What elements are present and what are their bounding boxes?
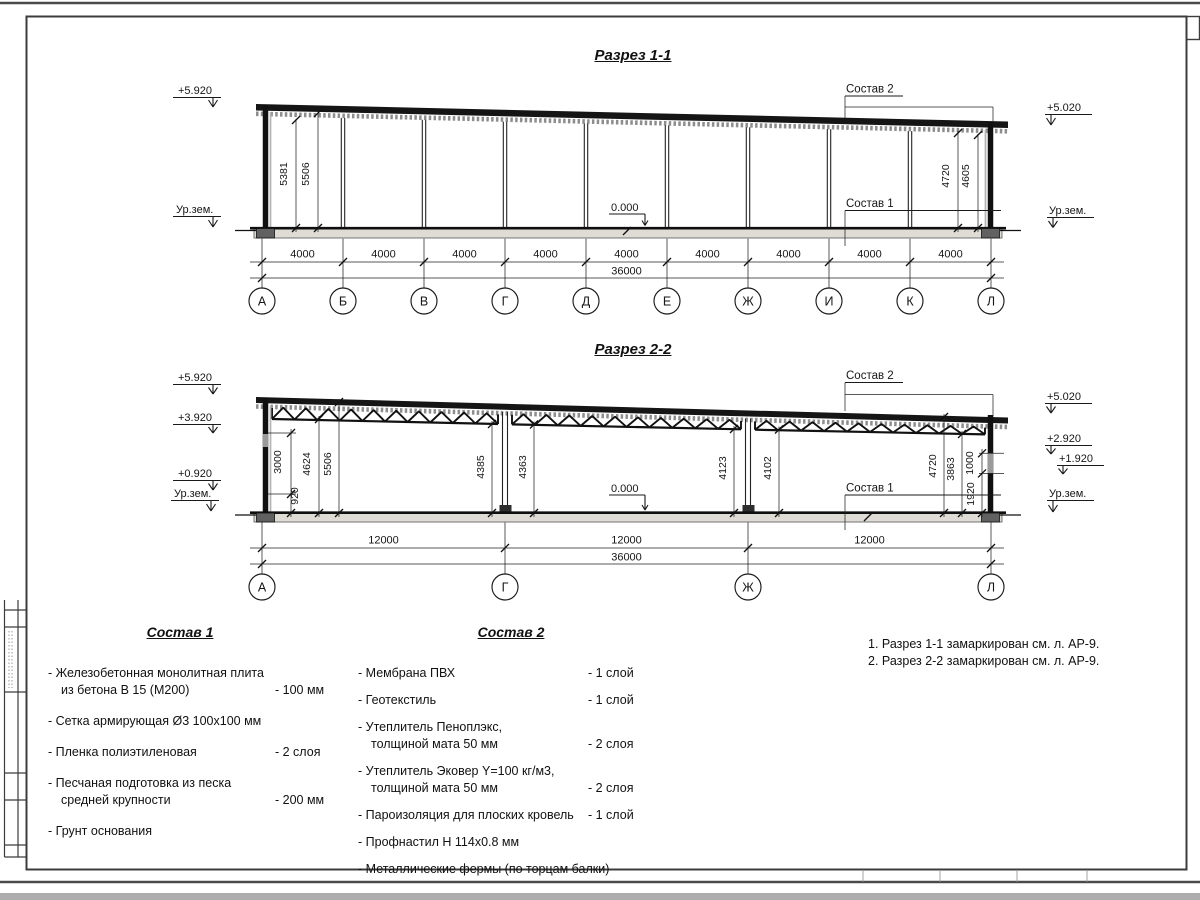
- dim-label: 5506: [300, 162, 312, 186]
- bay-dim: 4000: [533, 249, 557, 261]
- dim-label: 4123: [717, 456, 729, 480]
- dim-label: 920: [289, 487, 301, 505]
- list-item: - Песчаная подготовка из песка средней к…: [48, 775, 348, 809]
- list-item: - Утеплитель Эковер Y=100 кг/м3, толщино…: [358, 763, 668, 797]
- bay-dim: 12000: [611, 535, 642, 547]
- axis-letter: Е: [663, 295, 671, 309]
- list-item: - Грунт основания: [48, 823, 348, 840]
- bay-dim: 4000: [695, 249, 719, 261]
- elevation-label: +0.920: [178, 468, 212, 480]
- comp1-callout: Состав 1: [846, 198, 894, 210]
- axis-letter: Б: [339, 295, 347, 309]
- axis-letter: В: [420, 295, 428, 309]
- dim-label: 4102: [762, 456, 774, 480]
- composition-2-title: Состав 2: [358, 624, 664, 640]
- frame-corner-box: [1187, 17, 1200, 40]
- axis-letter: Г: [502, 581, 509, 595]
- section-2-2-title: Разрез 2-2: [558, 341, 708, 358]
- axis-bubbles-2-2: А Г Ж Л: [249, 574, 1004, 600]
- bay-dim: 4000: [452, 249, 476, 261]
- bay-dim: 4000: [614, 249, 638, 261]
- list-item: - Пароизоляция для плоских кровель - 1 с…: [358, 807, 668, 824]
- list-item: - Пленка полиэтиленовая - 2 слоя: [48, 744, 348, 761]
- bottom-dims-1-1: 4000 4000 4000 4000 4000 4000 4000 4000 …: [250, 239, 1004, 288]
- bay-dim: 4000: [857, 249, 881, 261]
- section-2-2: 3000 920 4624 5506 4385 4363 4123 4102 4…: [171, 370, 1104, 600]
- list-item: - Железобетонная монолитная плита из бет…: [48, 665, 348, 699]
- elevation-label: +1.920: [1059, 453, 1093, 465]
- axis-bubbles-1-1: А Б В Г Д Е Ж И К Л: [249, 288, 1004, 314]
- dim-label: 3863: [945, 457, 957, 481]
- zero-level-label: 0.000: [611, 202, 639, 214]
- axis-letter: Л: [987, 295, 995, 309]
- composition-callouts-2-2: Состав 2 Состав 1: [845, 370, 1001, 530]
- dim-label: 1920: [965, 482, 977, 506]
- floor-slab-1-1: [235, 227, 1021, 238]
- list-item: - Профнастил Н 114х0.8 мм: [358, 834, 668, 851]
- list-item: - Сетка армирующая Ø3 100х100 мм: [48, 713, 348, 730]
- zero-level-label: 0.000: [611, 483, 639, 495]
- dim-label: 1000: [964, 451, 976, 475]
- elevation-marks-2-2-left: +5.920 +3.920 +0.920 Ур.зем.: [171, 372, 221, 511]
- comp1-callout: Состав 1: [846, 483, 894, 495]
- item-qty: - 1 слой: [588, 807, 634, 824]
- dim-label: 5381: [278, 162, 290, 186]
- item-qty: - 2 слоя: [588, 780, 633, 797]
- item-qty: - 1 слой: [588, 665, 634, 682]
- sheet-bottom-band: [0, 893, 1200, 900]
- elevation-label: Ур.зем.: [1049, 488, 1086, 500]
- composition-1-title: Состав 1: [48, 624, 312, 640]
- bottom-dims-2-2: 12000 12000 12000 36000: [250, 523, 1004, 575]
- bay-dim: 12000: [854, 535, 885, 547]
- titleblock-ticks: [863, 870, 1087, 882]
- total-dim: 36000: [611, 552, 642, 564]
- elevation-label: +5.920: [178, 372, 212, 384]
- axis-letter: И: [825, 295, 834, 309]
- floor-slab-2-2: [235, 513, 1021, 522]
- dim-label: 4385: [475, 455, 487, 479]
- elevation-label: Ур.зем.: [174, 488, 211, 500]
- list-item: - Геотекстиль - 1 слой: [358, 692, 668, 709]
- left-stamp-column: [5, 600, 27, 857]
- bay-dim: 4000: [290, 249, 314, 261]
- item-qty: - 2 слоя: [588, 736, 633, 753]
- composition-callouts-1-1: Состав 2 Состав 1: [845, 84, 1001, 247]
- bay-dim: 4000: [938, 249, 962, 261]
- item-qty: - 2 слоя: [275, 744, 320, 761]
- axis-letter: Д: [582, 295, 591, 309]
- dim-label: 4720: [927, 454, 939, 478]
- comp2-callout: Состав 2: [846, 84, 894, 96]
- axis-letter: Г: [502, 295, 509, 309]
- axis-letter: К: [906, 295, 914, 309]
- dim-label: 3000: [272, 450, 284, 474]
- drawing-sheet: 5381 5506 4720 4605 +5.920 Ур.зем. +5.02…: [0, 0, 1200, 900]
- elevation-label: +5.020: [1047, 102, 1081, 114]
- elevation-label: +3.920: [178, 412, 212, 424]
- elevation-label: Ур.зем.: [1049, 205, 1086, 217]
- bay-dim: 12000: [368, 535, 399, 547]
- item-qty: - 1 слой: [588, 692, 634, 709]
- axis-letter: А: [258, 581, 267, 595]
- dim-label: 4605: [960, 164, 972, 188]
- axis-letter: Ж: [742, 295, 754, 309]
- bay-dim: 4000: [776, 249, 800, 261]
- note-line: 1. Разрез 1-1 замаркирован см. л. АР-9.: [868, 636, 1099, 653]
- list-item: - Металлические фермы (по торцам балки): [358, 861, 668, 878]
- axis-letter: Ж: [742, 581, 754, 595]
- elevation-label: +2.920: [1047, 433, 1081, 445]
- dim-label: 4720: [940, 164, 952, 188]
- note-line: 2. Разрез 2-2 замаркирован см. л. АР-9.: [868, 653, 1099, 670]
- section-1-1: 5381 5506 4720 4605 +5.920 Ур.зем. +5.02…: [173, 84, 1094, 315]
- list-item: - Мембрана ПВХ - 1 слой: [358, 665, 668, 682]
- dim-label: 4363: [517, 455, 529, 479]
- list-item: - Утеплитель Пеноплэкс, толщиной мата 50…: [358, 719, 668, 753]
- bay-dim: 4000: [371, 249, 395, 261]
- composition-1-list: Состав 1 - Железобетонная монолитная пли…: [48, 624, 348, 854]
- axis-letter: Л: [987, 581, 995, 595]
- comp2-callout: Состав 2: [846, 370, 894, 382]
- total-dim: 36000: [611, 266, 642, 278]
- elevation-label: Ур.зем.: [176, 204, 213, 216]
- dim-label: 4624: [301, 452, 313, 476]
- item-qty: - 100 мм: [275, 682, 324, 699]
- axis-letter: А: [258, 295, 267, 309]
- dim-label: 5506: [322, 452, 334, 476]
- elevation-label: +5.920: [178, 85, 212, 97]
- notes-block: 1. Разрез 1-1 замаркирован см. л. АР-9. …: [868, 636, 1099, 670]
- elevation-label: +5.020: [1047, 391, 1081, 403]
- composition-2-list: Состав 2 - Мембрана ПВХ - 1 слой - Геоте…: [358, 624, 668, 888]
- item-qty: - 200 мм: [275, 792, 324, 809]
- section-1-1-title: Разрез 1-1: [558, 47, 708, 64]
